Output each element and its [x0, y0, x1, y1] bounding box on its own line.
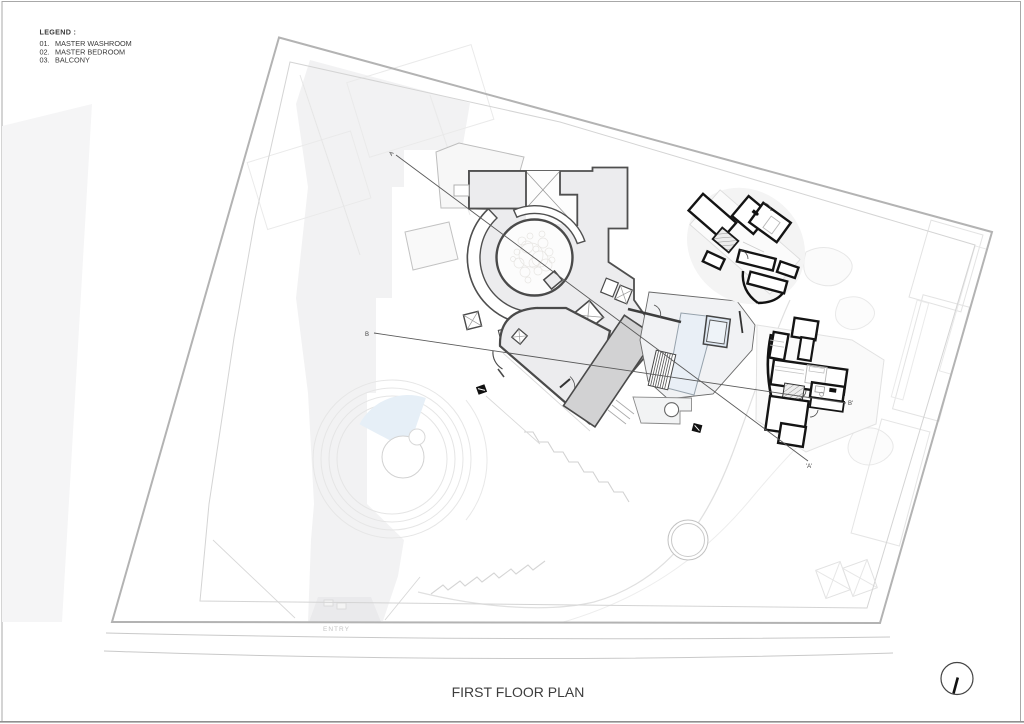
svg-text:LEGEND :: LEGEND :: [40, 28, 77, 37]
svg-text:B': B': [848, 401, 853, 407]
svg-text:03.: 03.: [40, 56, 50, 65]
svg-text:B: B: [365, 332, 369, 338]
svg-text:ENTRY: ENTRY: [323, 626, 350, 633]
svg-text:'A': 'A': [806, 464, 812, 470]
svg-text:BALCONY: BALCONY: [55, 56, 90, 65]
svg-text:FIRST FLOOR PLAN: FIRST FLOOR PLAN: [452, 684, 585, 700]
